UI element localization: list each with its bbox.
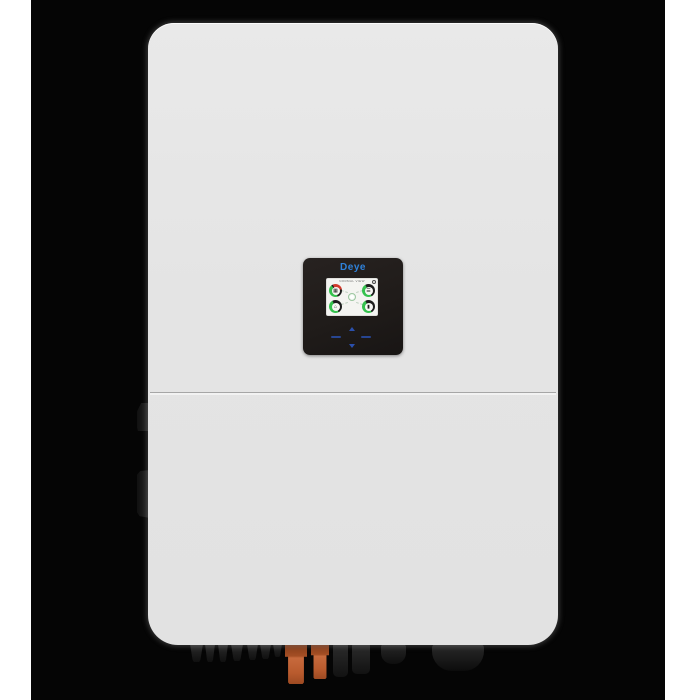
dc-plug-1-connector	[333, 644, 348, 677]
nav-right-button	[361, 336, 371, 338]
grid-icon: ☰	[362, 284, 375, 297]
battery-icon: ▮	[362, 300, 375, 313]
com-gland-2-connector	[205, 644, 215, 662]
ac-gland-small-connector	[381, 644, 406, 664]
enclosure-seam	[150, 392, 556, 395]
com-gland-1-connector	[190, 644, 203, 662]
com-gland-4-connector	[231, 644, 243, 661]
photo-background: Deye NORMAL VIEW ▦☰⌂▮	[31, 0, 665, 700]
com-gland-3-connector	[218, 644, 228, 662]
ac-gland-large-connector	[432, 644, 484, 671]
flow-line	[341, 290, 348, 293]
display-panel: Deye NORMAL VIEW ▦☰⌂▮	[303, 258, 403, 355]
lcd-screen: NORMAL VIEW ▦☰⌂▮	[326, 278, 378, 316]
dc-plug-2-connector	[352, 644, 370, 674]
nav-up-button	[349, 327, 355, 331]
grid-gauge: ☰	[362, 284, 375, 297]
flow-line	[341, 302, 348, 305]
power-flow-hub-icon	[348, 293, 356, 301]
battery-gauge: ▮	[362, 300, 375, 313]
product-photo-canvas: Deye NORMAL VIEW ▦☰⌂▮	[0, 0, 700, 700]
screen-title: NORMAL VIEW	[326, 279, 378, 283]
load-gauge: ⌂	[329, 300, 342, 313]
battery-terminal-2-connector	[311, 644, 329, 679]
battery-terminal-1-connector	[285, 644, 307, 684]
com-gland-6-connector	[260, 644, 271, 659]
pv-gauge: ▦	[329, 284, 342, 297]
nav-down-button	[349, 344, 355, 348]
pv-icon: ▦	[329, 284, 342, 297]
com-gland-7-connector	[273, 644, 282, 657]
load-icon: ⌂	[329, 300, 342, 313]
nav-left-button	[331, 336, 341, 338]
deye-logo: Deye	[303, 262, 403, 273]
com-gland-5-connector	[247, 644, 258, 660]
inverter-body: Deye NORMAL VIEW ▦☰⌂▮	[148, 23, 558, 645]
